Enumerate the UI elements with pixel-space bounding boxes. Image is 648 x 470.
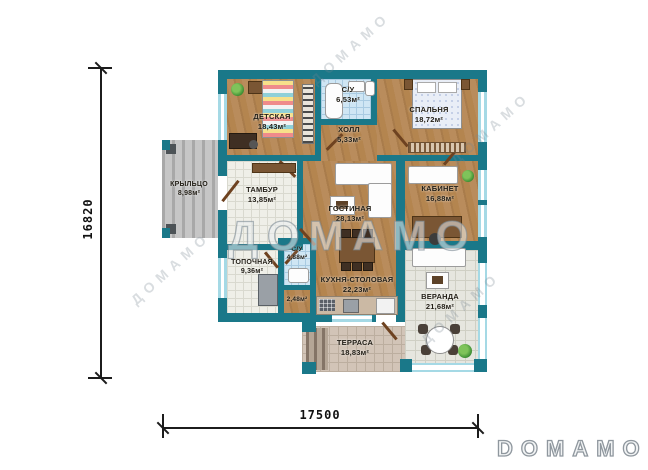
table-top-icon — [432, 276, 443, 284]
boiler-icon — [258, 274, 278, 306]
kitchen-sink-icon — [319, 299, 335, 311]
dimension-value-vertical: 16820 — [81, 189, 95, 249]
watermark-large: ДОМАМО — [228, 212, 478, 260]
plant-icon — [458, 344, 472, 358]
window — [478, 203, 487, 239]
porch-post — [162, 228, 170, 238]
terrace-post — [302, 322, 316, 332]
room-label-porch: КРЫЛЬЦО8,98м² — [158, 180, 220, 198]
plant-icon — [462, 170, 474, 182]
wall-segment — [218, 70, 487, 79]
room-label-tambur: ТАМБУР13,85м² — [222, 185, 302, 205]
veranda-post — [474, 359, 487, 372]
room-label-spalnya: СПАЛЬНЯ18,72м² — [383, 105, 475, 125]
pillow-icon — [417, 82, 436, 93]
sofa-icon — [335, 163, 392, 185]
coffee-table-icon — [426, 272, 449, 289]
fridge-icon — [376, 298, 395, 314]
room-label-terrace: ТЕРРАСА18,83м² — [315, 338, 395, 358]
room-label-kitchen: КУХНЯ-СТОЛОВАЯ22,23м² — [311, 275, 403, 295]
watermark: ДОМАМО — [128, 228, 214, 308]
plant-icon — [231, 83, 244, 96]
kitchen-counter-icon — [316, 296, 398, 315]
window — [218, 92, 227, 142]
terrace-post — [302, 362, 316, 374]
porch-post — [162, 140, 170, 150]
room-label-closet: 2,48м² — [277, 296, 317, 304]
room-label-kabinet: КАБИНЕТ16,88м² — [400, 184, 480, 204]
chair-icon — [341, 262, 351, 271]
room-label-detskaya: ДЕТСКАЯ18,43м² — [227, 112, 317, 132]
cabinet-icon — [252, 163, 296, 173]
dimension-line-vertical — [100, 68, 102, 379]
sofa-icon — [408, 166, 458, 184]
veranda-post — [400, 359, 412, 372]
dimension-value-horizontal: 17500 — [290, 408, 350, 422]
floor-plan: ДЕТСКАЯ18,43м² С/У6,53м² ХОЛЛ5,33м² СПАЛ… — [0, 0, 648, 470]
nightstand-icon — [461, 79, 470, 90]
chair-icon — [352, 262, 362, 271]
stove-icon — [343, 299, 359, 313]
dimension-line-horizontal — [163, 427, 478, 429]
veranda-post — [478, 250, 487, 263]
chair-icon — [363, 262, 373, 271]
pillow-icon — [438, 82, 457, 93]
sink-icon — [288, 268, 309, 283]
wall-segment — [218, 155, 321, 161]
domamo-logo: DOMAMO — [497, 436, 648, 462]
room-label-bathroom: С/У6,53м² — [318, 85, 378, 105]
chair-icon — [249, 140, 258, 149]
room-label-hall: ХОЛЛ5,33м² — [318, 125, 380, 145]
nightstand-icon — [404, 79, 413, 90]
